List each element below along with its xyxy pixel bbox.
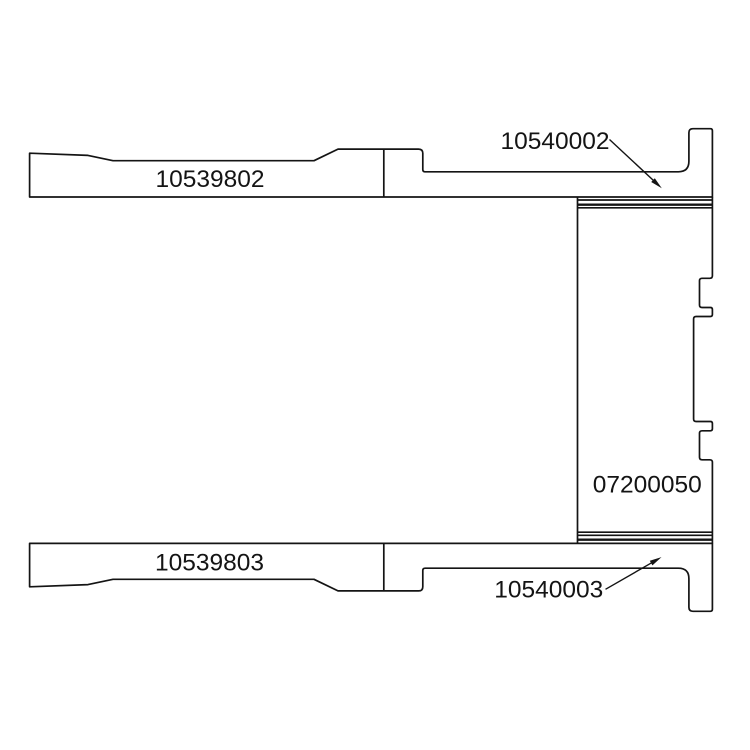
svg-text:10539802: 10539802 <box>155 166 264 193</box>
svg-text:10539803: 10539803 <box>155 549 264 576</box>
svg-text:10540003: 10540003 <box>494 577 603 604</box>
svg-text:07200050: 07200050 <box>593 471 702 498</box>
svg-text:10540002: 10540002 <box>500 128 609 155</box>
